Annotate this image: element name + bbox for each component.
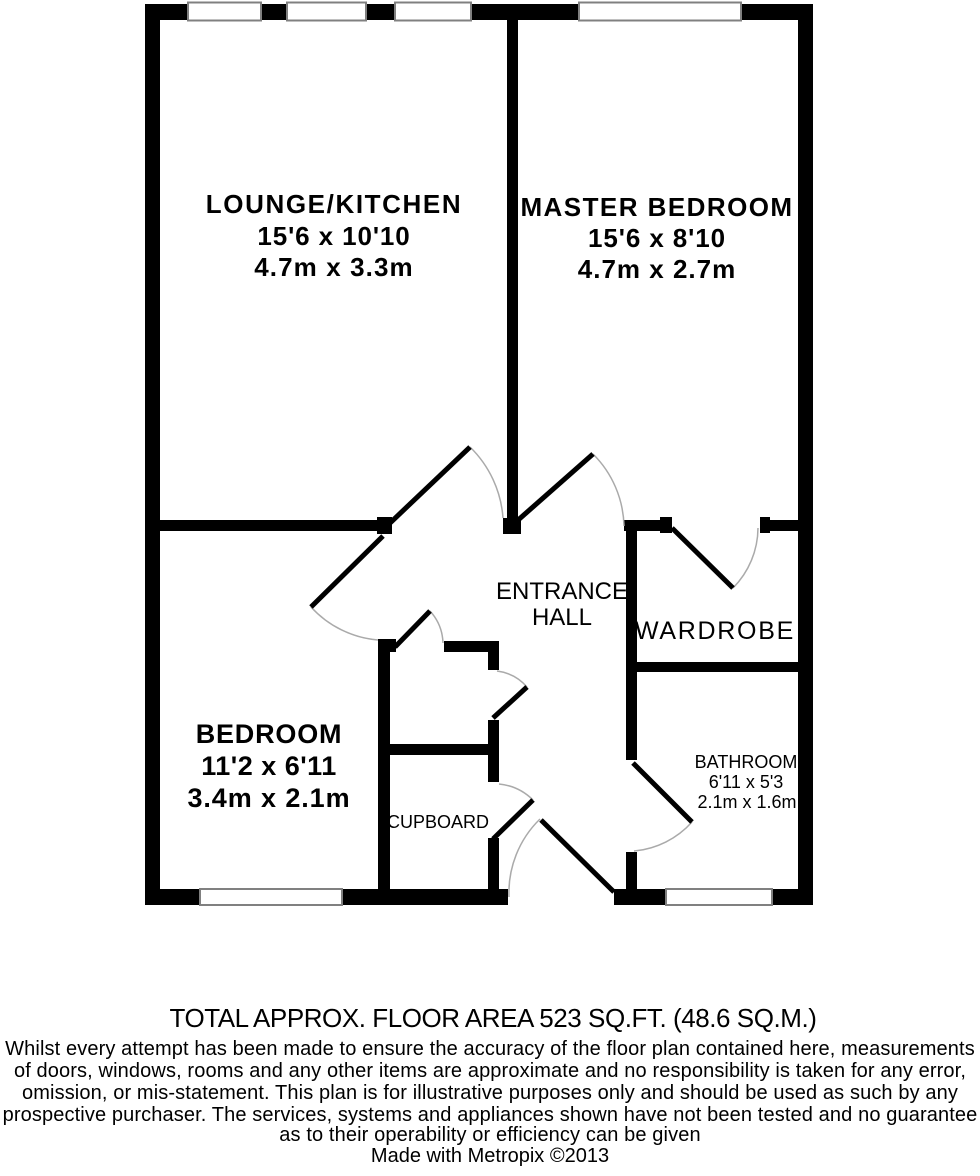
svg-text:MASTER BEDROOM: MASTER BEDROOM (520, 192, 793, 222)
svg-text:prospective purchaser. The ser: prospective purchaser. The services, sys… (3, 1104, 978, 1126)
svg-text:as to their operability or eff: as to their operability or efficiency ca… (279, 1124, 700, 1146)
svg-text:Whilst every attempt has been: Whilst every attempt has been made to en… (5, 1038, 975, 1060)
svg-text:3.4m x 2.1m: 3.4m x 2.1m (187, 783, 350, 813)
svg-text:15'6 x 10'10: 15'6 x 10'10 (257, 221, 410, 251)
svg-text:of doors, windows, rooms and a: of doors, windows, rooms and any other i… (14, 1060, 966, 1082)
svg-text:Made with Metropix ©2013: Made with Metropix ©2013 (371, 1145, 609, 1167)
svg-text:6'11 x 5'3: 6'11 x 5'3 (709, 772, 784, 792)
svg-text:BATHROOM: BATHROOM (695, 752, 798, 772)
svg-text:BEDROOM: BEDROOM (196, 719, 343, 749)
svg-text:TOTAL APPROX. FLOOR AREA 523 S: TOTAL APPROX. FLOOR AREA 523 SQ.FT. (48.… (170, 1003, 817, 1033)
svg-text:4.7m x 3.3m: 4.7m x 3.3m (254, 252, 414, 282)
svg-text:omission, or mis-statement. Th: omission, or mis-statement. This plan is… (22, 1082, 958, 1104)
svg-text:11'2 x 6'11: 11'2 x 6'11 (201, 751, 336, 781)
svg-text:HALL: HALL (532, 604, 592, 631)
svg-text:ENTRANCE: ENTRANCE (496, 578, 628, 605)
svg-text:CUPBOARD: CUPBOARD (387, 812, 489, 832)
svg-text:4.7m x 2.7m: 4.7m x 2.7m (578, 254, 736, 284)
svg-text:LOUNGE/KITCHEN: LOUNGE/KITCHEN (206, 189, 462, 219)
svg-text:15'6 x 8'10: 15'6 x 8'10 (588, 223, 726, 253)
svg-text:2.1m x 1.6m: 2.1m x 1.6m (697, 792, 796, 812)
svg-text:WARDROBE: WARDROBE (635, 617, 795, 645)
